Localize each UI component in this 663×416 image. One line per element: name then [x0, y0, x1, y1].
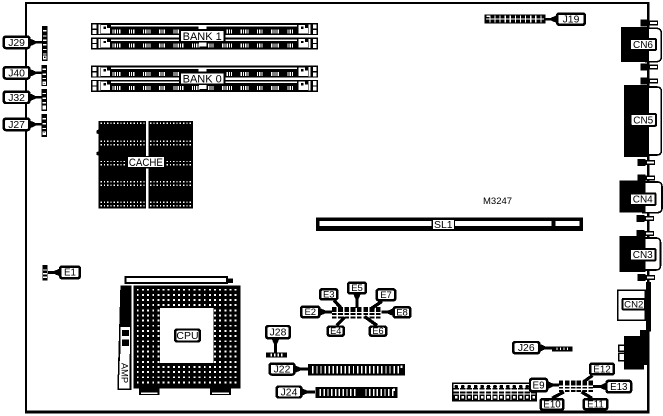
- svg-text:E13: E13: [610, 382, 628, 393]
- svg-text:J28: J28: [270, 328, 287, 339]
- svg-text:E8: E8: [396, 308, 408, 319]
- svg-text:J19: J19: [563, 15, 580, 26]
- svg-text:BANK 0: BANK 0: [183, 73, 222, 85]
- svg-text:E3: E3: [323, 290, 335, 301]
- svg-text:CN3: CN3: [633, 250, 653, 261]
- svg-text:J32: J32: [8, 93, 25, 104]
- svg-text:CN6: CN6: [633, 40, 653, 51]
- svg-text:E1: E1: [64, 268, 76, 279]
- svg-text:SL1: SL1: [434, 219, 453, 231]
- svg-text:CN2: CN2: [624, 299, 643, 310]
- svg-text:E11: E11: [587, 400, 604, 411]
- svg-text:E9: E9: [533, 380, 545, 391]
- svg-text:E6: E6: [372, 326, 383, 336]
- svg-text:E7: E7: [380, 290, 392, 301]
- svg-text:J29: J29: [8, 38, 25, 49]
- svg-text:CN4: CN4: [633, 195, 653, 206]
- svg-text:CN5: CN5: [633, 115, 653, 126]
- svg-text:J40: J40: [8, 68, 25, 79]
- svg-text:J26: J26: [518, 343, 535, 354]
- svg-text:E4: E4: [330, 326, 341, 336]
- svg-text:BANK 1: BANK 1: [183, 31, 222, 43]
- svg-text:CACHE: CACHE: [129, 157, 163, 169]
- svg-text:J24: J24: [281, 388, 298, 399]
- svg-text:J27: J27: [8, 120, 25, 131]
- svg-text:E2: E2: [304, 307, 316, 318]
- svg-text:E5: E5: [351, 283, 363, 294]
- svg-text:E10: E10: [543, 400, 561, 411]
- svg-text:E12: E12: [593, 364, 610, 375]
- svg-text:AMP: AMP: [120, 363, 130, 383]
- svg-text:J22: J22: [274, 365, 291, 376]
- svg-text:CPU: CPU: [176, 330, 198, 342]
- svg-text:M3247: M3247: [483, 196, 512, 207]
